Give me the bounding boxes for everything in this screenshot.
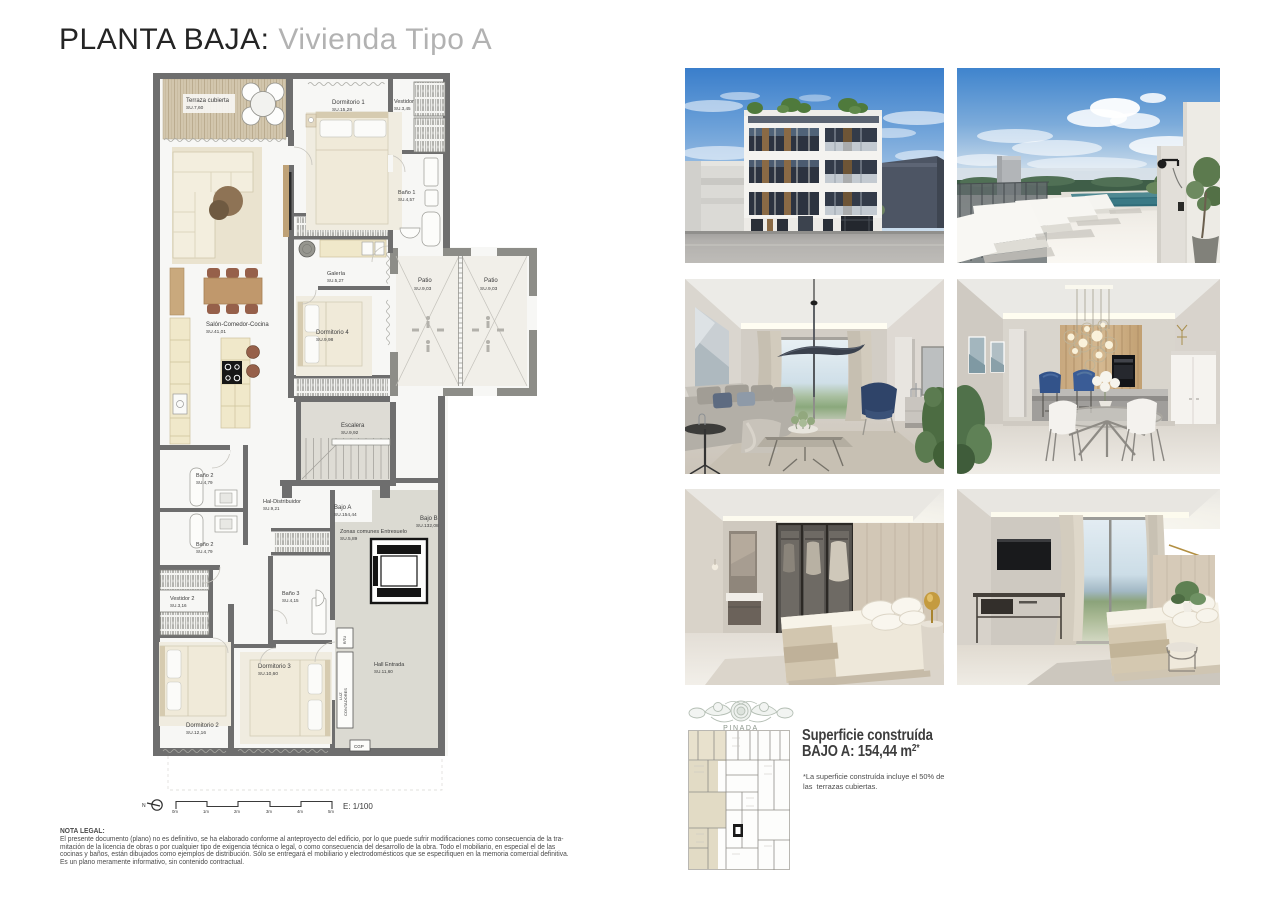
- svg-text:Vestidor 2: Vestidor 2: [170, 596, 194, 602]
- svg-text:SU.11,60: SU.11,60: [374, 669, 393, 674]
- svg-text:Zonas comunes Entresuelo: Zonas comunes Entresuelo: [340, 529, 407, 535]
- svg-text:Dormitorio 3: Dormitorio 3: [258, 664, 291, 670]
- svg-text:Patio: Patio: [484, 278, 498, 284]
- svg-text:SU.15,28: SU.15,28: [332, 107, 352, 113]
- svg-text:CGP: CGP: [354, 744, 364, 749]
- svg-text:Dormitorio 2: Dormitorio 2: [186, 723, 219, 729]
- svg-text:R/TU: R/TU: [343, 636, 347, 644]
- svg-text:SU.5,89: SU.5,89: [340, 536, 358, 542]
- svg-text:Hal-Distribuidor: Hal-Distribuidor: [263, 499, 301, 505]
- svg-text:SU.132,08: SU.132,08: [416, 523, 439, 529]
- svg-text:Escalera: Escalera: [341, 423, 365, 429]
- svg-text:SU.7,60: SU.7,60: [186, 105, 204, 111]
- svg-text:SU.4,15: SU.4,15: [282, 598, 299, 603]
- svg-text:CONTADORES: CONTADORES: [343, 688, 348, 716]
- svg-text:3m: 3m: [266, 809, 272, 814]
- svg-text:SU.5,27: SU.5,27: [327, 278, 344, 283]
- svg-text:Bajo B: Bajo B: [420, 516, 438, 522]
- svg-text:SU.9,03: SU.9,03: [480, 286, 498, 292]
- svg-text:Salón-Comedor-Cocina: Salón-Comedor-Cocina: [206, 322, 269, 328]
- svg-text:Galería: Galería: [327, 271, 346, 277]
- svg-text:Dormitorio 4: Dormitorio 4: [316, 330, 349, 336]
- svg-text:Patio: Patio: [418, 278, 432, 284]
- svg-text:LUZ: LUZ: [338, 692, 343, 700]
- svg-text:SU.9,98: SU.9,98: [316, 337, 334, 343]
- svg-text:Baño 2: Baño 2: [196, 473, 213, 479]
- svg-text:SU.3,45: SU.3,45: [394, 106, 411, 111]
- svg-text:Dormitorio 1: Dormitorio 1: [332, 100, 365, 106]
- svg-text:Baño 3: Baño 3: [282, 591, 299, 597]
- svg-text:1m: 1m: [203, 809, 209, 814]
- svg-text:SU.4,79: SU.4,79: [196, 549, 213, 554]
- svg-text:Bajo A: Bajo A: [334, 505, 351, 511]
- svg-text:SU.4,57: SU.4,57: [398, 197, 415, 202]
- svg-text:Vestidor: Vestidor: [394, 99, 414, 105]
- svg-text:SU.10,60: SU.10,60: [258, 671, 278, 677]
- svg-text:SU.41,01: SU.41,01: [206, 329, 226, 335]
- svg-text:Hall Entrada: Hall Entrada: [374, 662, 405, 668]
- svg-text:SU.9,21: SU.9,21: [263, 506, 280, 511]
- svg-text:SU.12,16: SU.12,16: [186, 730, 206, 736]
- svg-text:N: N: [142, 803, 146, 809]
- svg-text:SU.3,16: SU.3,16: [170, 603, 187, 608]
- svg-text:Terraza cubierta: Terraza cubierta: [186, 98, 230, 104]
- svg-text:5m: 5m: [328, 809, 334, 814]
- svg-text:Baño 2: Baño 2: [196, 542, 213, 548]
- svg-text:2m: 2m: [234, 809, 240, 814]
- svg-text:SU.4,79: SU.4,79: [196, 480, 213, 485]
- svg-text:SU.9,92: SU.9,92: [341, 430, 359, 436]
- svg-text:E: 1/100: E: 1/100: [343, 802, 373, 811]
- svg-text:SU.9,03: SU.9,03: [414, 286, 432, 292]
- svg-text:Baño 1: Baño 1: [398, 190, 415, 196]
- svg-text:4m: 4m: [297, 809, 303, 814]
- svg-text:SU.154,44: SU.154,44: [334, 512, 357, 518]
- svg-text:0m: 0m: [172, 809, 178, 814]
